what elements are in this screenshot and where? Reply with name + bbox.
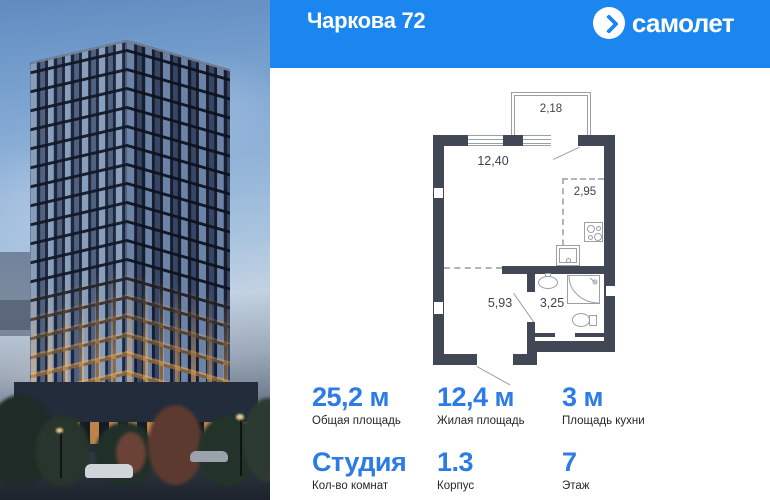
building-photo — [0, 0, 270, 500]
tree-autumn — [148, 405, 203, 485]
stat-floor: 7 Этаж — [562, 448, 684, 492]
window-symbol — [523, 135, 551, 146]
wall-joint — [434, 188, 443, 198]
street-lamp — [60, 432, 62, 478]
brand-logo: самолет — [593, 7, 734, 39]
stat-label: Жилая площадь — [437, 415, 559, 427]
stat-value: Студия — [312, 448, 434, 476]
toilet-icon — [572, 313, 590, 327]
wall — [433, 354, 477, 365]
door-swing-line — [553, 147, 580, 160]
lamp-glow — [56, 428, 63, 433]
car — [190, 451, 228, 462]
toilet-tank — [589, 315, 597, 326]
bath-sink-icon — [538, 276, 558, 289]
stove-icon — [584, 222, 603, 242]
stat-label: Этаж — [562, 480, 684, 492]
bathroom-wall — [575, 333, 604, 337]
wall-joint — [606, 286, 615, 296]
tree — [35, 415, 90, 487]
wall — [503, 135, 523, 146]
bathroom-wall — [534, 333, 555, 337]
wall — [604, 135, 615, 352]
brand-name: самолет — [632, 7, 734, 39]
bath-sink-tap — [545, 273, 551, 277]
stat-value: 25,2 м — [312, 383, 434, 411]
wall-joint — [434, 302, 443, 314]
stat-label: Корпус — [437, 480, 559, 492]
wall — [433, 135, 444, 365]
project-title: Чаркова 72 — [307, 8, 425, 34]
kitchen-sink-icon — [556, 245, 580, 266]
interior-wall — [502, 266, 604, 274]
area-label-balcony: 2,18 — [526, 103, 576, 115]
area-label-hallway: 5,93 — [478, 296, 522, 310]
stat-value: 1.3 — [437, 448, 559, 476]
lamp-glow — [236, 414, 244, 420]
stat-rooms: Студия Кол-во комнат — [312, 448, 434, 492]
header-bar: Чаркова 72 самолет — [270, 0, 770, 68]
interior-wall — [527, 322, 535, 365]
stat-value: 7 — [562, 448, 684, 476]
interior-wall — [527, 274, 535, 292]
stat-label: Кол-во комнат — [312, 480, 434, 492]
samolet-logo-icon — [593, 7, 625, 39]
kitchen-zone-line — [562, 178, 604, 180]
stat-kitchen-area: 3 м Площадь кухни — [562, 383, 684, 427]
car — [85, 464, 133, 478]
stat-living-area: 12,4 м Жилая площадь — [437, 383, 559, 427]
window-symbol — [468, 135, 503, 146]
stat-label: Площадь кухни — [562, 415, 684, 427]
stat-value: 3 м — [562, 383, 684, 411]
street-lamp — [240, 418, 242, 476]
area-label-kitchen: 2,95 — [564, 186, 606, 198]
stat-label: Общая площадь — [312, 415, 434, 427]
hall-zone-line — [444, 267, 502, 269]
area-label-bathroom: 3,25 — [530, 296, 574, 310]
stat-total-area: 25,2 м Общая площадь — [312, 383, 434, 427]
area-label-living: 12,40 — [466, 154, 520, 168]
chevron-right-icon — [599, 14, 619, 34]
stat-building: 1.3 Корпус — [437, 448, 559, 492]
wall — [534, 341, 615, 352]
listing-card: Чаркова 72 самолет — [0, 0, 770, 500]
stat-value: 12,4 м — [437, 383, 559, 411]
balcony-inner-line — [514, 95, 588, 136]
